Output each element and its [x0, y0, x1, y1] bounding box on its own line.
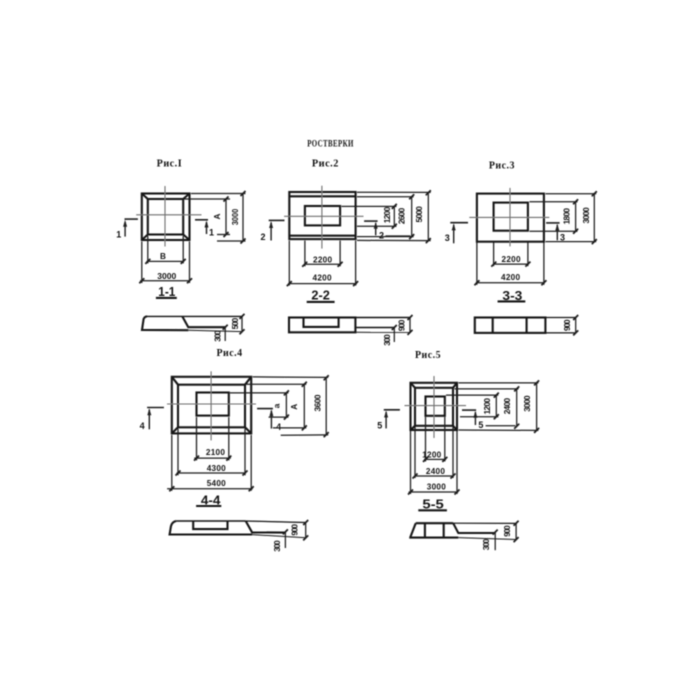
svg-text:2100: 2100: [206, 448, 225, 457]
svg-text:1200: 1200: [383, 206, 392, 223]
svg-text:4200: 4200: [313, 274, 332, 283]
svg-text:2: 2: [260, 232, 265, 242]
svg-text:2-2: 2-2: [311, 289, 330, 303]
svg-text:3000: 3000: [157, 272, 176, 281]
svg-text:3000: 3000: [231, 208, 240, 225]
svg-text:3000: 3000: [582, 207, 591, 224]
svg-text:900: 900: [291, 524, 300, 536]
svg-text:Рис.3: Рис.3: [489, 161, 515, 172]
svg-text:5400: 5400: [207, 479, 226, 488]
svg-text:3: 3: [445, 233, 450, 243]
svg-text:3600: 3600: [313, 394, 322, 411]
svg-text:2600: 2600: [398, 207, 407, 224]
svg-text:5000: 5000: [415, 206, 424, 223]
svg-text:а: а: [273, 403, 282, 408]
svg-text:В: В: [160, 252, 166, 261]
svg-text:2200: 2200: [502, 255, 521, 264]
svg-text:1800: 1800: [563, 208, 572, 225]
svg-text:900: 900: [398, 319, 407, 331]
svg-text:Рис.2: Рис.2: [312, 158, 339, 169]
svg-text:300: 300: [273, 540, 282, 552]
svg-text:3: 3: [560, 233, 565, 243]
svg-text:А: А: [290, 404, 299, 410]
svg-text:Рис.5: Рис.5: [415, 350, 441, 361]
svg-text:5: 5: [478, 420, 483, 430]
svg-text:1: 1: [116, 230, 121, 240]
svg-text:4: 4: [276, 422, 281, 432]
svg-text:1200: 1200: [483, 398, 492, 415]
svg-text:3000: 3000: [523, 395, 532, 412]
svg-text:300: 300: [383, 334, 392, 346]
svg-text:1200: 1200: [422, 450, 441, 459]
svg-text:4200: 4200: [501, 273, 520, 282]
svg-text:2400: 2400: [426, 467, 445, 476]
svg-text:4: 4: [140, 421, 145, 431]
svg-text:300: 300: [482, 538, 491, 550]
svg-text:2200: 2200: [313, 255, 332, 264]
svg-text:500: 500: [231, 317, 240, 329]
svg-text:2: 2: [379, 231, 384, 241]
svg-text:4300: 4300: [207, 464, 226, 473]
svg-text:А: А: [213, 213, 222, 219]
svg-text:РОСТВЕРКИ: РОСТВЕРКИ: [307, 140, 354, 150]
svg-text:Рис.4: Рис.4: [217, 348, 243, 359]
svg-text:900: 900: [563, 319, 572, 331]
svg-text:2400: 2400: [503, 398, 512, 415]
svg-text:Рис.I: Рис.I: [157, 158, 183, 169]
svg-text:300: 300: [214, 330, 223, 342]
svg-text:1: 1: [209, 228, 214, 238]
svg-text:1-1: 1-1: [158, 285, 175, 299]
svg-text:5: 5: [377, 421, 382, 431]
svg-text:900: 900: [503, 525, 512, 537]
svg-text:3000: 3000: [427, 482, 446, 491]
